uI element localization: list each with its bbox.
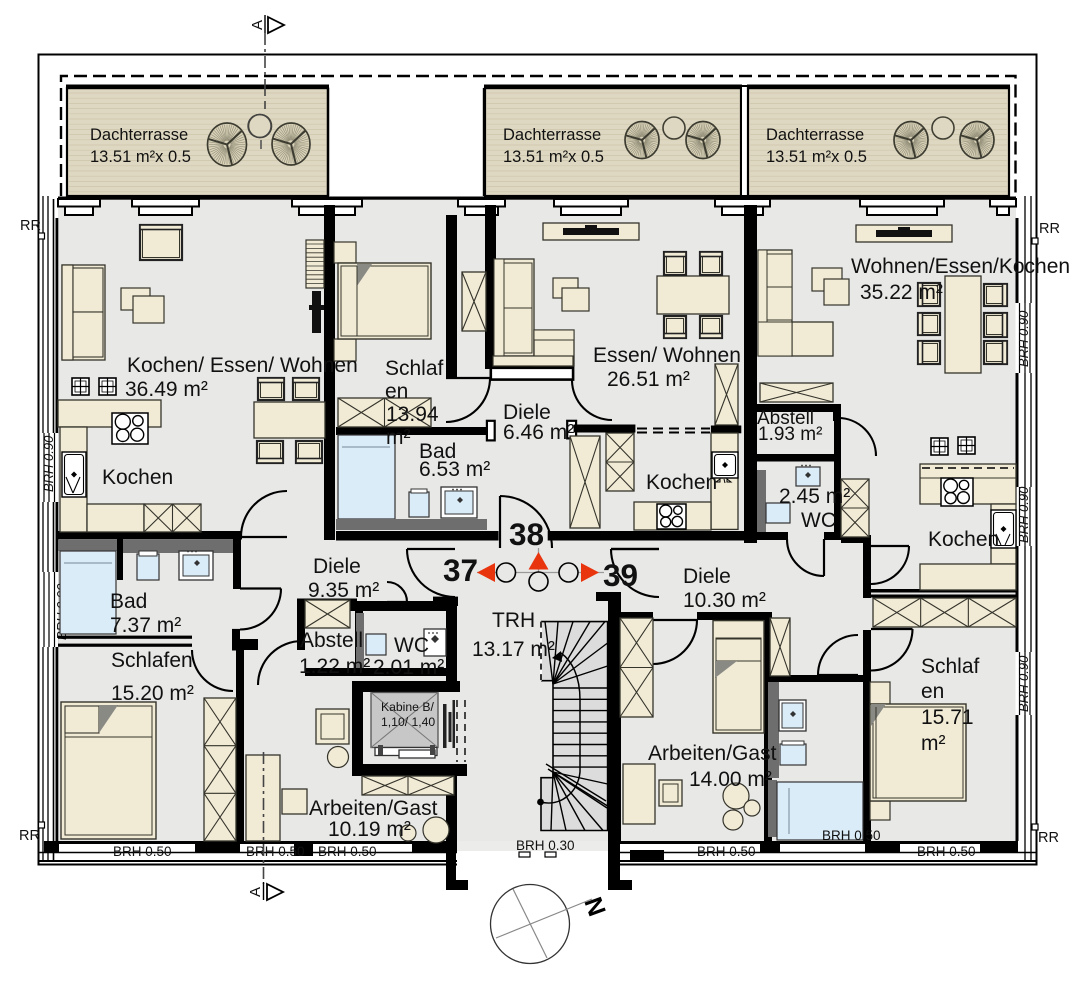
svg-text:Wohnen/Essen/Kochen: Wohnen/Essen/Kochen <box>851 255 1070 278</box>
svg-text:A: A <box>247 887 264 897</box>
svg-text:Dachterrasse: Dachterrasse <box>90 126 188 144</box>
svg-text:15.20 m²: 15.20 m² <box>111 682 194 705</box>
svg-text:RR: RR <box>1039 221 1060 237</box>
svg-text:WC: WC <box>801 509 836 532</box>
svg-text:38: 38 <box>509 516 544 552</box>
svg-text:BRH 0.50: BRH 0.50 <box>822 828 881 843</box>
svg-text:TRH: TRH <box>492 609 535 632</box>
svg-text:1,10/ 1,40: 1,10/ 1,40 <box>381 715 435 729</box>
svg-text:36.49 m²: 36.49 m² <box>125 378 208 401</box>
svg-text:WC: WC <box>394 634 429 657</box>
svg-text:7.37 m²: 7.37 m² <box>110 614 181 637</box>
svg-text:Arbeiten/Gast: Arbeiten/Gast <box>648 742 777 765</box>
svg-text:10.19 m²: 10.19 m² <box>328 818 411 841</box>
svg-text:6.46 m²: 6.46 m² <box>503 421 574 444</box>
svg-text:Kochen/ Essen/ Wohnen: Kochen/ Essen/ Wohnen <box>127 354 358 377</box>
svg-text:13.51 m²x 0.5: 13.51 m²x 0.5 <box>90 148 191 166</box>
svg-text:Kochen: Kochen <box>646 471 717 494</box>
svg-text:BRH 0.50: BRH 0.50 <box>318 844 377 859</box>
svg-text:en: en <box>385 380 408 403</box>
svg-text:Arbeiten/Gast: Arbeiten/Gast <box>309 797 438 820</box>
svg-text:1.22 m²: 1.22 m² <box>299 655 370 678</box>
svg-text:13.17 m²: 13.17 m² <box>472 638 555 661</box>
svg-text:RR: RR <box>1038 830 1059 846</box>
svg-text:15.71: 15.71 <box>921 706 974 729</box>
svg-text:2.01 m²: 2.01 m² <box>373 656 444 679</box>
svg-text:RR: RR <box>20 218 41 234</box>
svg-text:BRH 0.30: BRH 0.30 <box>516 838 575 853</box>
svg-text:Diele: Diele <box>313 555 361 578</box>
svg-text:BRH 0.50: BRH 0.50 <box>697 844 756 859</box>
svg-text:en: en <box>921 680 944 703</box>
svg-text:Abstell: Abstell <box>300 629 363 652</box>
svg-text:Schlaf: Schlaf <box>385 357 444 380</box>
svg-text:Dachterrasse: Dachterrasse <box>766 126 864 144</box>
svg-text:m²: m² <box>386 426 411 449</box>
svg-text:Schlaf: Schlaf <box>921 655 980 678</box>
svg-text:Dachterrasse: Dachterrasse <box>503 126 601 144</box>
svg-text:2.45 m²: 2.45 m² <box>779 485 850 508</box>
svg-text:37: 37 <box>443 552 478 588</box>
svg-text:Kochen: Kochen <box>102 466 173 489</box>
svg-text:m²: m² <box>921 732 946 755</box>
svg-text:26.51 m²: 26.51 m² <box>607 368 690 391</box>
svg-text:1.93 m²: 1.93 m² <box>758 424 822 445</box>
svg-text:BRH 0.90: BRH 0.90 <box>1016 310 1031 367</box>
svg-text:13.94: 13.94 <box>386 403 439 426</box>
svg-text:13.51 m²x 0.5: 13.51 m²x 0.5 <box>766 148 867 166</box>
svg-text:Essen/ Wohnen: Essen/ Wohnen <box>593 344 741 367</box>
svg-text:10.30 m²: 10.30 m² <box>683 589 766 612</box>
svg-text:Bad: Bad <box>110 590 147 613</box>
svg-text:6.53 m²: 6.53 m² <box>419 458 490 481</box>
svg-text:Schlafen: Schlafen <box>111 649 193 672</box>
svg-text:Kochen: Kochen <box>928 528 999 551</box>
svg-text:Diele: Diele <box>683 565 731 588</box>
svg-text:13.51 m²x 0.5: 13.51 m²x 0.5 <box>503 148 604 166</box>
svg-text:BRH 0.90: BRH 0.90 <box>1016 486 1031 543</box>
svg-text:BRH 0.50: BRH 0.50 <box>113 844 172 859</box>
svg-text:35.22 m²: 35.22 m² <box>860 281 943 304</box>
svg-text:BRH 0.50: BRH 0.50 <box>917 844 976 859</box>
svg-text:Kabine B/: Kabine B/ <box>381 700 434 714</box>
svg-text:A: A <box>249 20 266 30</box>
svg-text:9.35 m²: 9.35 m² <box>308 579 379 602</box>
svg-text:RR: RR <box>19 828 40 844</box>
svg-text:14.00 m²: 14.00 m² <box>689 768 772 791</box>
svg-text:BRH 0.90: BRH 0.90 <box>1016 655 1031 712</box>
svg-text:BRH 0.50: BRH 0.50 <box>246 844 305 859</box>
svg-text:39: 39 <box>603 557 638 593</box>
svg-text:BRH 0.90: BRH 0.90 <box>41 435 56 492</box>
